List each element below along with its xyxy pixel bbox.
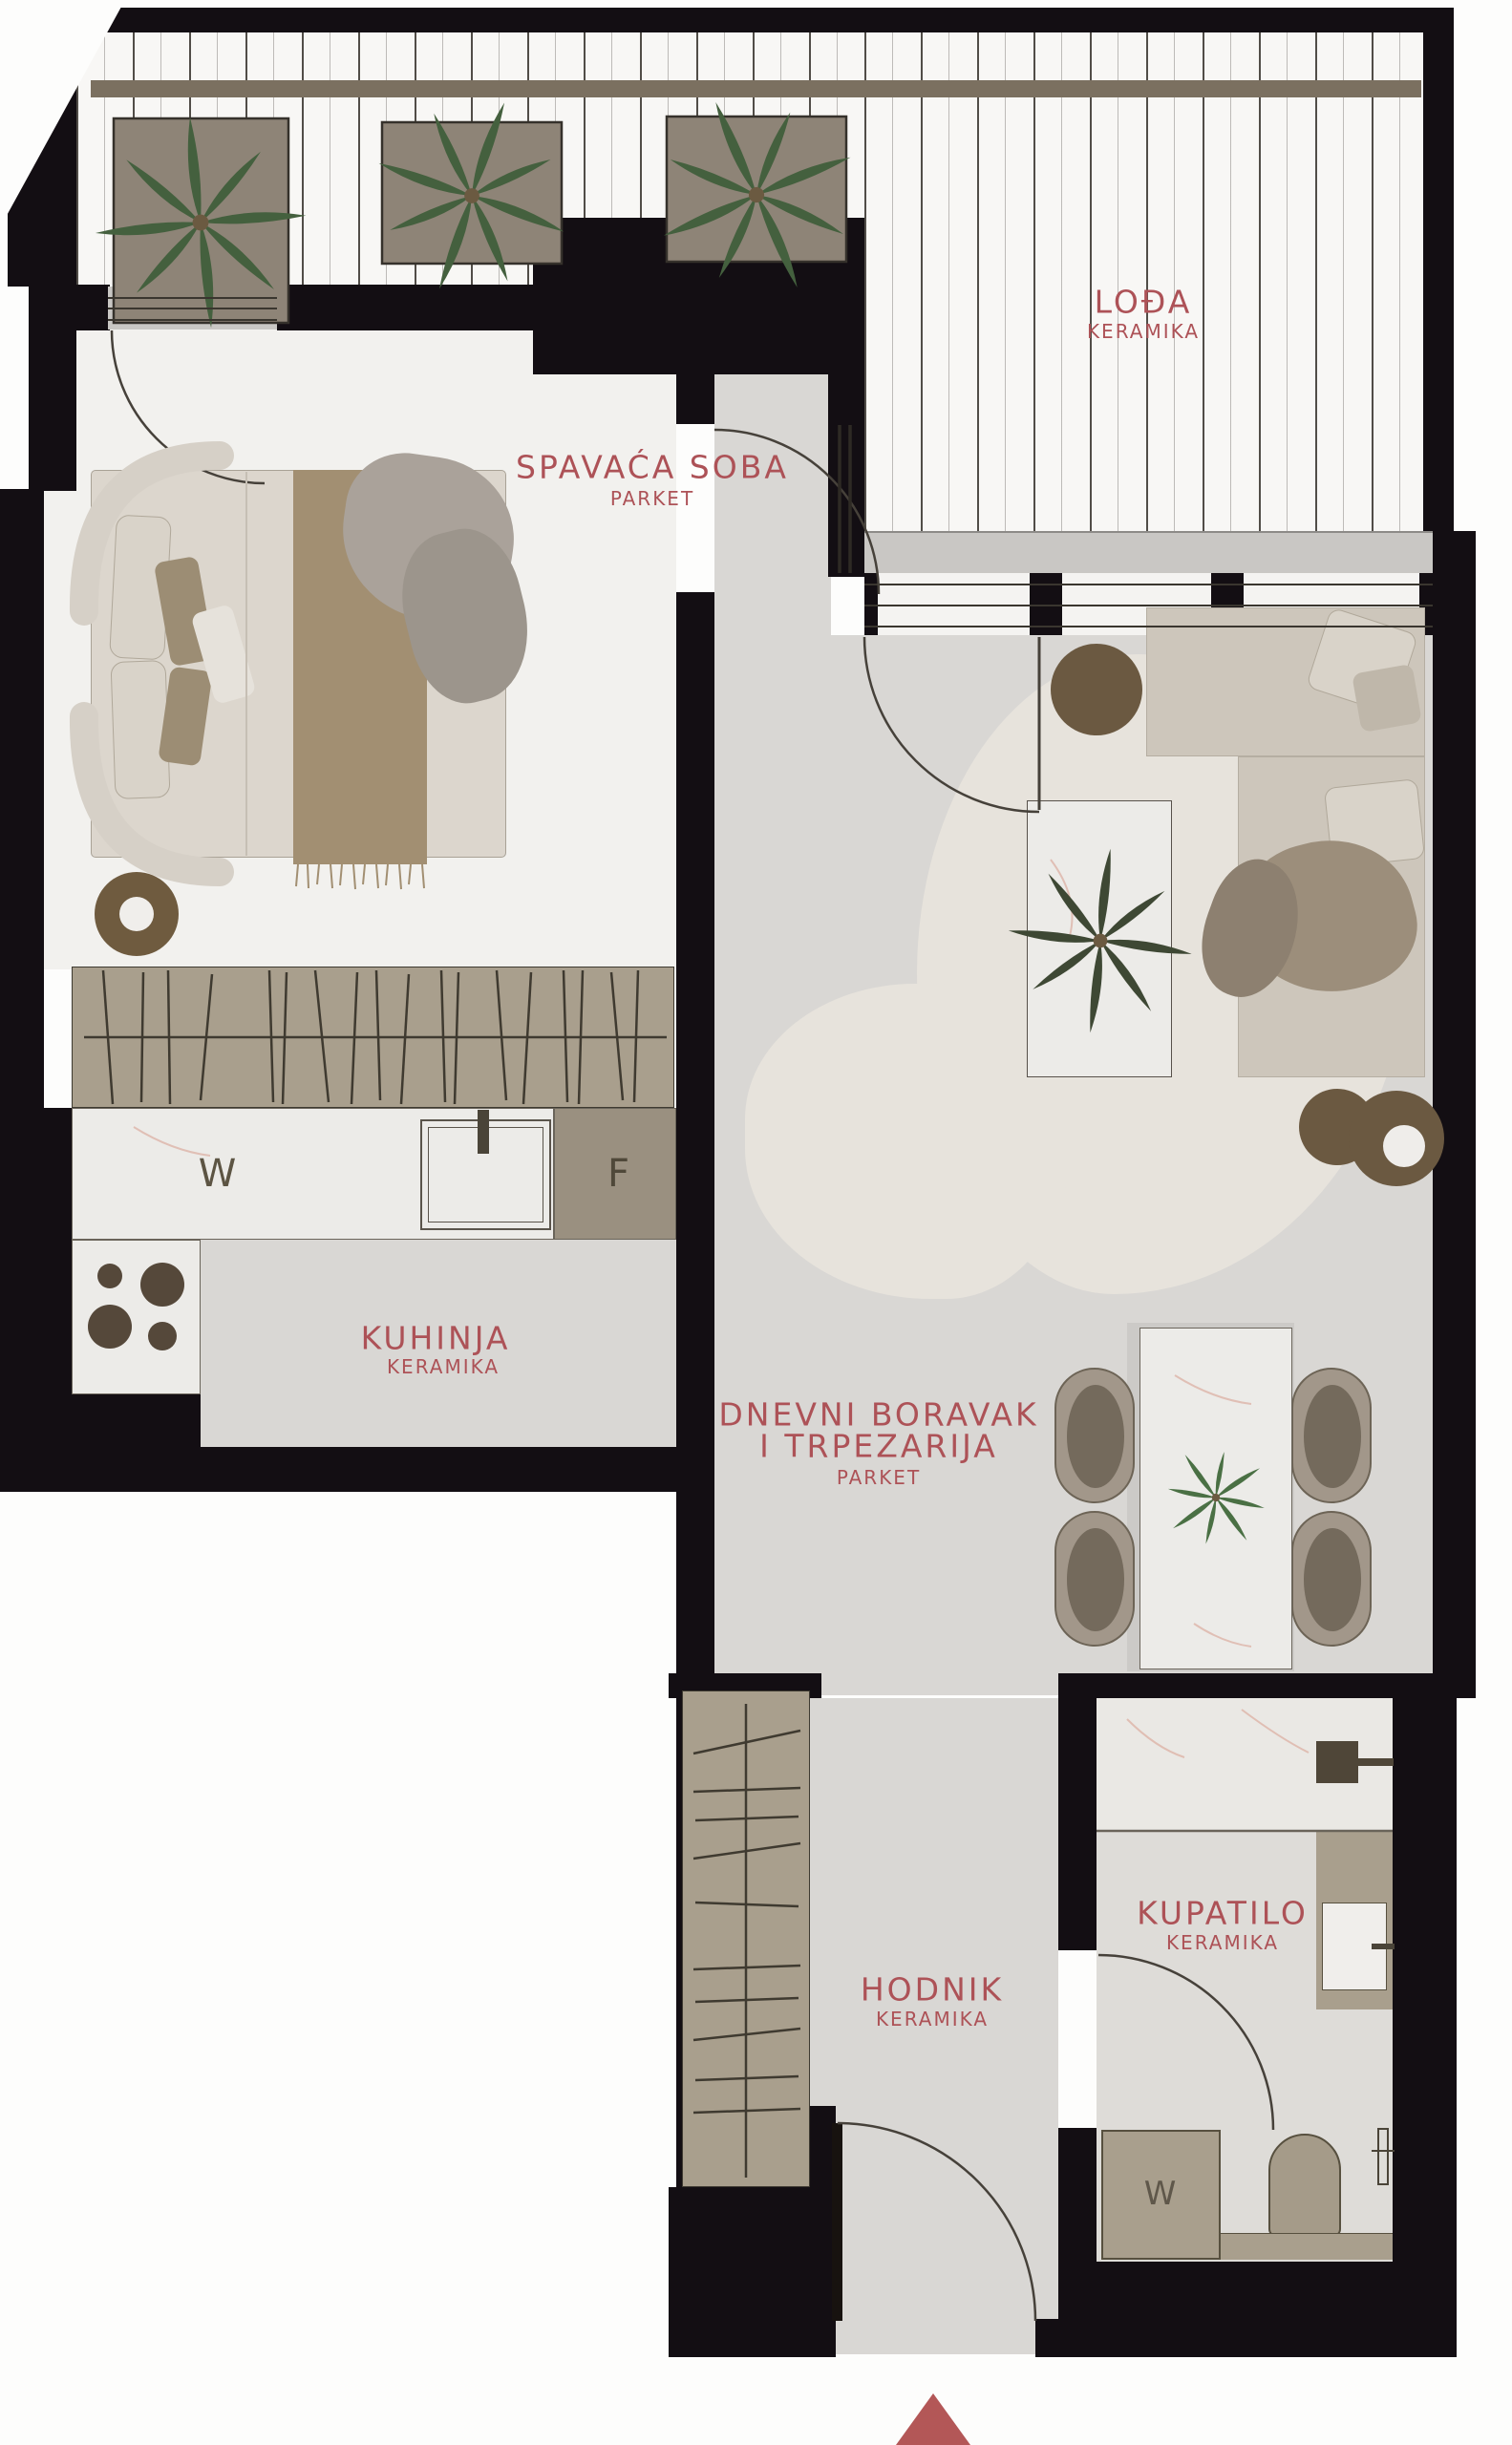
bathroom-washer-label: W <box>1144 2175 1178 2213</box>
wall-entry-right-stub <box>1035 2319 1097 2357</box>
chair-seat <box>1304 1385 1361 1488</box>
wall-bedroom-living-upper <box>676 374 714 424</box>
dining-chair-3 <box>1291 1368 1372 1503</box>
label-bathroom-finish: KERAMIKA <box>1166 1931 1279 1954</box>
toilet <box>1268 2134 1341 2237</box>
window-mullion-1 <box>864 573 878 635</box>
wall-bathroom-right <box>1393 1698 1457 2357</box>
chair-seat <box>1067 1528 1124 1631</box>
label-hallway-finish: KERAMIKA <box>876 2008 989 2030</box>
pouf-tray <box>1383 1125 1425 1167</box>
dining-table <box>1139 1328 1292 1669</box>
wall-bedroom-window-right <box>277 285 535 330</box>
wall-bedroom-left-upper <box>29 287 76 491</box>
wall-block-vertical <box>828 374 864 577</box>
bedroom-rug-inner <box>119 897 154 931</box>
label-loggia: LOĐA <box>1095 284 1193 321</box>
loggia-deck-right <box>864 31 1423 531</box>
label-bathroom: KUPATILO <box>1137 1895 1309 1932</box>
hallway-closet <box>682 1690 810 2187</box>
kitchen-faucet <box>478 1110 489 1154</box>
corner-cut-mask <box>0 0 126 231</box>
label-bedroom: SPAVAĆA SOBA <box>516 449 789 486</box>
burner-large-1 <box>140 1263 184 1307</box>
chair-seat <box>1067 1385 1124 1488</box>
wall-bathroom-top <box>1058 1673 1476 1698</box>
burner-small-1 <box>97 1264 122 1288</box>
label-kitchen-finish: KERAMIKA <box>387 1355 500 1378</box>
loggia-sill <box>864 531 1433 573</box>
dining-chair-4 <box>1291 1511 1372 1647</box>
wall-top <box>62 8 1444 32</box>
burner-large-2 <box>88 1305 132 1349</box>
burner-small-2 <box>148 1322 177 1350</box>
floor-plan: LOĐA KERAMIKA SPAVAĆA SOBA PARKET KUHINJ… <box>0 0 1512 2445</box>
label-kitchen: KUHINJA <box>361 1320 511 1357</box>
label-hallway: HODNIK <box>861 1971 1004 2009</box>
label-living-finish: PARKET <box>837 1466 921 1489</box>
entrance-door-leaf <box>832 2123 842 2321</box>
wall-left-kitchen <box>0 1108 72 1492</box>
wall-kitchen-bottom <box>0 1447 714 1492</box>
bedroom-wardrobe <box>72 967 674 1108</box>
bathroom-radiator <box>1377 2128 1389 2185</box>
window-mullion-2 <box>1030 573 1062 635</box>
wall-loggia-right <box>1423 8 1454 573</box>
label-bedroom-finish: PARKET <box>610 487 694 510</box>
wall-bathdoor-upper <box>1058 1698 1097 1950</box>
bedroom-balcony-threshold <box>108 287 277 330</box>
bathroom-counter-strip <box>1221 2233 1393 2260</box>
label-loggia-finish: KERAMIKA <box>1087 320 1200 343</box>
sofa-pillow-2 <box>1352 664 1422 733</box>
label-living-line2: I TRPEZARIJA <box>759 1428 998 1465</box>
wall-bathroom-bottom <box>1058 2262 1457 2357</box>
wall-block-bedroom-loggia <box>533 218 864 374</box>
wall-living-right <box>1433 531 1476 1698</box>
kitchen-washer-label: W <box>199 1152 238 1196</box>
wall-below-stove <box>72 1394 201 1449</box>
side-table-round <box>1051 644 1142 735</box>
shower-head-fixture <box>1316 1741 1358 1783</box>
chair-seat <box>1304 1528 1361 1631</box>
coffee-table <box>1027 800 1172 1077</box>
wall-bedroom-window-left <box>76 285 110 330</box>
bathroom-sink <box>1322 1903 1387 1990</box>
dining-chair-1 <box>1054 1368 1135 1503</box>
dining-chair-2 <box>1054 1511 1135 1647</box>
entrance-arrow <box>896 2393 970 2445</box>
kitchen-fridge-label: F <box>607 1152 630 1196</box>
